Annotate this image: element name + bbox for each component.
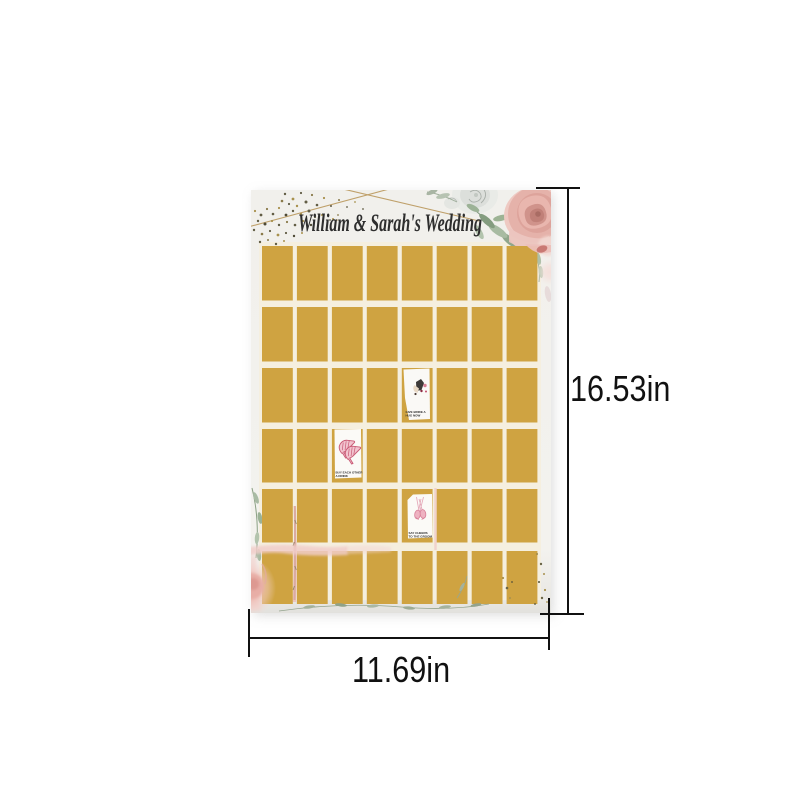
svg-text:TO THE GROOM: TO THE GROOM (409, 535, 433, 539)
svg-text:HUG NOW: HUG NOW (406, 414, 421, 418)
svg-text:William & Sarah's Wedding: William & Sarah's Wedding (298, 210, 482, 237)
svg-text:A DRINK: A DRINK (336, 474, 349, 478)
